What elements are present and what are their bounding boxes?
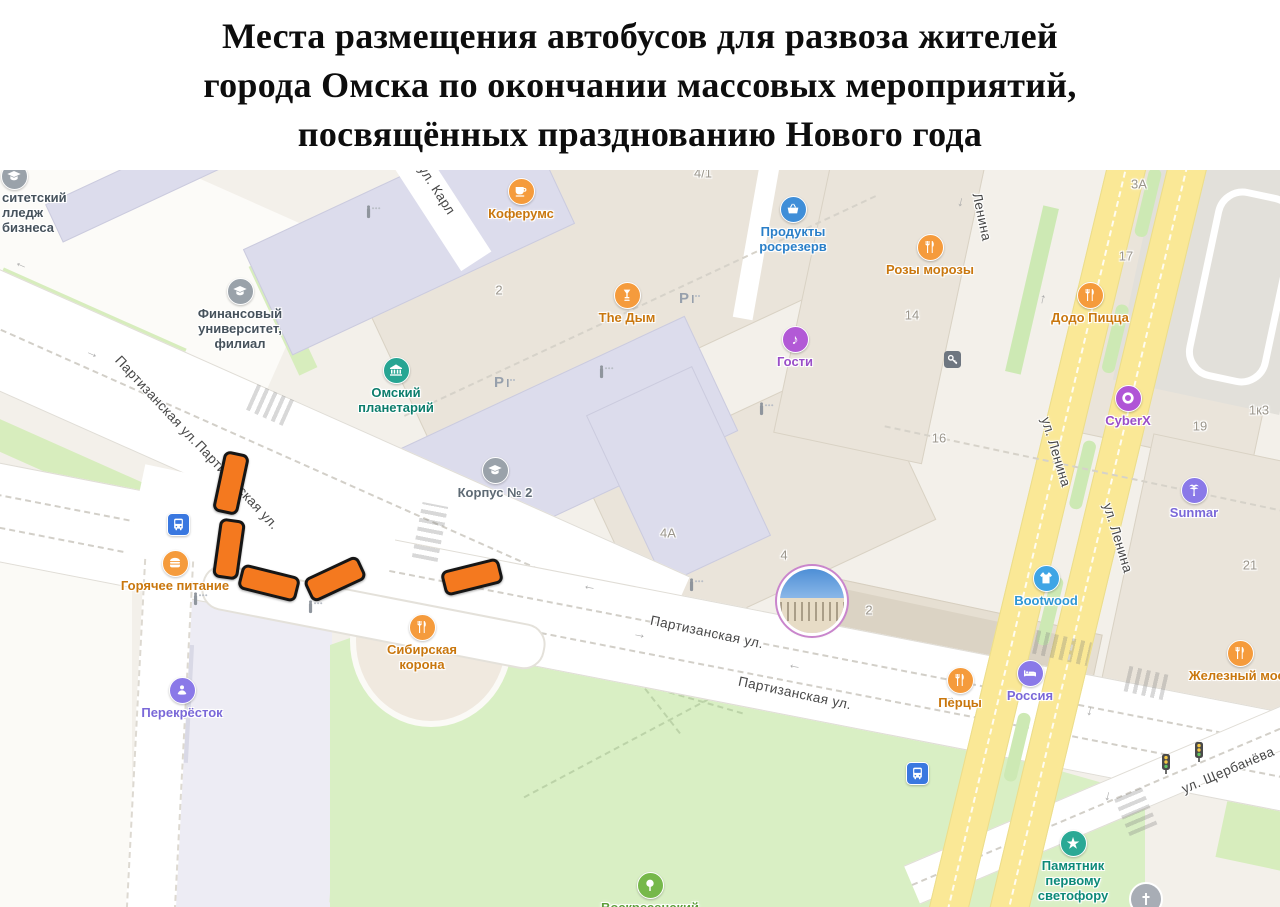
sunmar[interactable] [1181, 477, 1208, 504]
building-number: 1к3 [1249, 403, 1269, 418]
barrier-icon [306, 599, 325, 619]
pertsy-label: Перцы [938, 695, 982, 710]
traffic-light-icon [1161, 753, 1171, 780]
rozy-morozy[interactable] [917, 234, 944, 261]
produkty-rosrezerv-label: Продуктыросрезерв [759, 224, 827, 254]
photo-windows [780, 602, 844, 621]
barrier-icon [597, 364, 616, 384]
voskresensky[interactable] [637, 872, 664, 899]
pamyatnik-pervomu-svetoforu[interactable]: ★ [1060, 830, 1087, 857]
road-arrow-icon: ↑ [1038, 289, 1048, 306]
photo-marker[interactable] [780, 569, 844, 633]
building-number: 3А [1131, 177, 1147, 192]
zhelezny-most[interactable] [1227, 640, 1254, 667]
building-number: 2 [865, 603, 872, 618]
produkty-rosrezerv[interactable] [780, 196, 807, 223]
road-arrow-icon: ↓ [956, 192, 966, 209]
tree-icon [637, 872, 664, 899]
finansovy-universitet-label: Финансовыйуниверситет,филиал [198, 306, 282, 351]
building-number: 19 [1193, 419, 1207, 434]
church-icon [1129, 882, 1163, 907]
perekrestok[interactable] [169, 677, 196, 704]
tshirt-icon [1033, 565, 1060, 592]
the-dym-label: The Дым [599, 310, 656, 325]
cyberx-label: CyberX [1105, 413, 1151, 428]
rossiya-label: Россия [1007, 688, 1053, 703]
universitetsky-college-label: ситетскийлледжбизнеса [2, 190, 67, 235]
building-number: 17 [1119, 249, 1133, 264]
road-arrow-icon: ← [787, 655, 804, 673]
barrier-icon [687, 577, 706, 597]
rozy-morozy-label: Розы морозы [886, 262, 974, 277]
bus-parking-marker [440, 557, 505, 597]
bus-stop-icon[interactable] [167, 513, 190, 536]
street-label: ул. Ленина [1038, 415, 1073, 488]
street-label: ул. Ленина [1100, 501, 1135, 574]
goryachee-pitanie-label: Горячее питание [121, 578, 229, 593]
street-label: Партизанская ул. [649, 613, 765, 652]
goryachee-pitanie[interactable] [162, 550, 189, 577]
road-arrow-icon: → [83, 342, 102, 362]
rossiya[interactable] [1017, 660, 1044, 687]
koferums[interactable] [508, 178, 535, 205]
person-icon [169, 677, 196, 704]
street-label: Партизанская ул. [737, 674, 853, 713]
sibirskaya-korona-label: Сибирскаякорона [387, 642, 457, 672]
restaurant-icon [1227, 640, 1254, 667]
building-number: 14 [905, 308, 919, 323]
restaurant-icon [1077, 282, 1104, 309]
building-number: 4 [780, 548, 787, 563]
title-line-1: Места размещения автобусов для развоза ж… [222, 12, 1058, 61]
hookah-icon [614, 282, 641, 309]
road-arrow-icon: → [632, 624, 649, 642]
music-note-icon: ♪ [782, 326, 809, 353]
traffic-light-icon [1194, 741, 1204, 768]
restaurant-icon [947, 667, 974, 694]
key-icon [944, 351, 961, 373]
sibirskaya-korona[interactable] [409, 614, 436, 641]
title-line-2: города Омска по окончании массовых мероп… [203, 61, 1076, 110]
bootwood[interactable] [1033, 565, 1060, 592]
omsky-planetary[interactable] [383, 357, 410, 384]
universitetsky-college[interactable] [1, 170, 28, 190]
restaurant-icon [409, 614, 436, 641]
bus-parking-marker [237, 563, 302, 603]
parking-icon[interactable]: P [494, 374, 516, 394]
grocery-basket-icon [780, 196, 807, 223]
gosti[interactable]: ♪ [782, 326, 809, 353]
dodo-pizza-label: Додо Пицца [1051, 310, 1129, 325]
sunmar-label: Sunmar [1170, 505, 1218, 520]
road-arrow-icon: ← [12, 253, 31, 273]
title-line-3: посвящённых празднованию Нового года [298, 110, 982, 159]
building-number: 16 [932, 431, 946, 446]
svg-text:P: P [494, 374, 504, 389]
page: Места размещения автобусов для развоза ж… [0, 0, 1280, 907]
star-icon: ★ [1060, 830, 1087, 857]
street-label: ул. Карл [416, 170, 459, 217]
pamyatnik-pervomu-svetoforu-label: Памятникпервомусветофору [1038, 858, 1108, 903]
building-number: 2 [495, 283, 502, 298]
building-number: 4А [660, 526, 676, 541]
building-number: 4/1 [694, 170, 712, 181]
bootwood-label: Bootwood [1014, 593, 1078, 608]
building-number: 21 [1243, 558, 1257, 573]
voskresensky-label: Воскресенский [601, 900, 699, 907]
map-canvas[interactable]: Партизанская ул.Партизанская ул.Партизан… [0, 170, 1280, 907]
barrier-icon [191, 591, 210, 611]
palm-icon [1181, 477, 1208, 504]
barrier-icon [364, 204, 383, 224]
university-icon [482, 457, 509, 484]
koferums-label: Коферумс [488, 206, 554, 221]
finansovy-universitet[interactable] [227, 278, 254, 305]
zhelezny-most-label: Железный мост [1189, 668, 1280, 683]
pertsy[interactable] [947, 667, 974, 694]
restaurant-icon [917, 234, 944, 261]
korpus-2[interactable] [482, 457, 509, 484]
university-icon [227, 278, 254, 305]
parking-icon[interactable]: P [679, 290, 701, 310]
bus-parking-marker [302, 555, 367, 604]
markers-layer: Партизанская ул.Партизанская ул.Партизан… [0, 170, 1280, 907]
svg-text:P: P [679, 290, 689, 305]
korpus-2-label: Корпус № 2 [458, 485, 533, 500]
title-block: Места размещения автобусов для развоза ж… [0, 0, 1280, 170]
road-arrow-icon: ↓ [1085, 701, 1095, 718]
perekrestok-label: Перекрёсток [141, 705, 222, 720]
university-icon [1, 170, 28, 190]
hotel-bed-icon [1017, 660, 1044, 687]
burger-icon [162, 550, 189, 577]
photo-sky [780, 569, 844, 598]
gosti-label: Гости [777, 354, 813, 369]
coffee-icon [508, 178, 535, 205]
the-dym[interactable] [614, 282, 641, 309]
ring-icon [1115, 385, 1142, 412]
bus-stop-icon[interactable] [906, 762, 929, 785]
street-label: Ленина [970, 192, 995, 243]
road-arrow-icon: ← [582, 576, 599, 594]
dodo-pizza[interactable] [1077, 282, 1104, 309]
museum-icon [383, 357, 410, 384]
omsky-planetary-label: Омскийпланетарий [358, 385, 434, 415]
barrier-icon [757, 401, 776, 421]
cyberx[interactable] [1115, 385, 1142, 412]
street-label: Партизанская ул. [112, 353, 202, 448]
